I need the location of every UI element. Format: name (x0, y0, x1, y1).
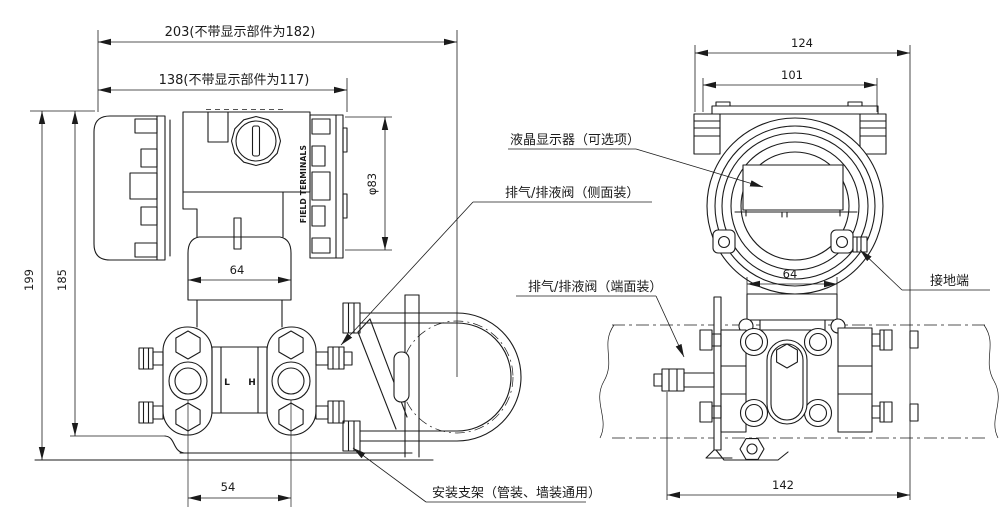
lcd-display (735, 165, 857, 217)
housing-face (694, 102, 886, 333)
callout-vent-side: 排气/排液阀（侧面装） (341, 185, 652, 345)
conduit-entry (208, 112, 228, 142)
callout-ground: 接地端 (860, 250, 990, 290)
vent-end-label: 排气/排液阀（端面装） (528, 279, 662, 295)
vent-pin (234, 218, 241, 249)
technical-drawing: FIELD TERMINALS L H (0, 0, 1000, 521)
dim-manifold-width: 142 (772, 478, 794, 492)
front-view: FIELD TERMINALS L H (35, 110, 521, 508)
mounting-bracket (35, 295, 433, 460)
dim-overall-height: 199 (22, 269, 36, 291)
ground-label: 接地端 (930, 273, 969, 289)
neck-side (747, 294, 837, 320)
bracket-plate-side (714, 297, 721, 450)
side-vent-valve (316, 347, 352, 369)
dim-flange-height: 185 (55, 269, 69, 291)
dim-overall-width: 124 (791, 36, 813, 50)
ground-terminal (853, 237, 867, 252)
dim-port-spacing: 54 (221, 480, 236, 494)
pipe-clamp (343, 303, 521, 451)
u-bolt-nut-bottom (343, 421, 360, 451)
high-side-label: H (248, 378, 256, 388)
callouts: 液晶显示器（可选项） 排气/排液阀（侧面装） 排气/排液阀（端面装） 接地端 安… (341, 133, 990, 502)
clamp-saddle (394, 352, 409, 402)
dim-neck-width-side: 64 (783, 267, 798, 281)
cable-gland-right (860, 114, 886, 154)
dim-cover-diameter: φ83 (365, 173, 379, 195)
callout-bracket: 安装支架（管装、墙装通用） (353, 448, 601, 502)
clamp-nut (740, 439, 764, 460)
dim-housing-length: 138(不带显示部件为117) (159, 73, 310, 88)
cable-gland-left (694, 114, 720, 154)
adjustment-knob (232, 117, 281, 166)
callout-vent-end: 排气/排液阀（端面装） (516, 279, 684, 357)
dim-neck-width: 64 (230, 263, 245, 277)
process-flange: L H (139, 300, 352, 507)
vent-side-label: 排气/排液阀（侧面装） (505, 185, 639, 201)
bracket-label: 安装支架（管装、墙装通用） (432, 486, 601, 501)
field-terminals-label: FIELD TERMINALS (299, 145, 308, 223)
sensor-center-block (212, 347, 267, 413)
housing-front: FIELD TERMINALS (94, 110, 347, 301)
dim-housing-width: 101 (781, 68, 803, 82)
terminal-cover (310, 115, 343, 258)
dim-total-length: 203(不带显示部件为182) (165, 25, 316, 40)
u-bolt-nut-top (343, 303, 360, 333)
low-side-label: L (224, 378, 230, 388)
lcd-label: 液晶显示器（可选项） (510, 133, 640, 148)
end-vent-valve (654, 369, 714, 391)
transmitter-dimension-drawing: FIELD TERMINALS L H (0, 0, 1000, 521)
